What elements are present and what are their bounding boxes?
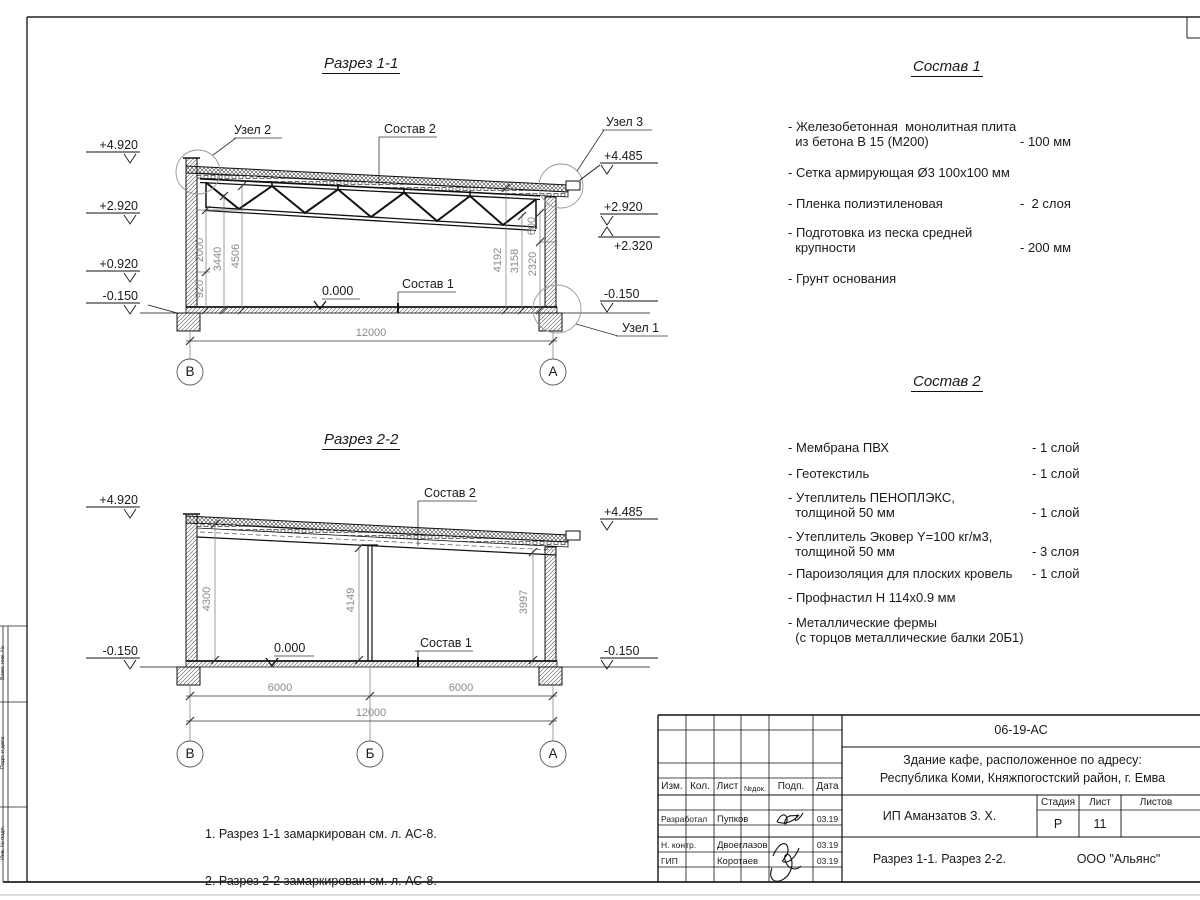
- tb-row1-date: 03.19: [813, 814, 842, 824]
- drawing-sheet: Разрез 1-1 Разрез 2-2 Состав 1 Состав 2 …: [0, 0, 1200, 900]
- section1-geometry: [86, 130, 668, 385]
- section1-title: Разрез 1-1: [322, 55, 400, 74]
- s2-elev-r1: +4.485: [604, 505, 643, 519]
- notes-block: 1. Разрез 1-1 замаркирован см. л. АС-8. …: [205, 796, 437, 900]
- tb-row2-name: Двоеглазов: [717, 840, 768, 851]
- tb-sheet-label: Лист: [1079, 797, 1121, 808]
- s2-dim-3997: 3997: [518, 582, 530, 622]
- tb-stage-value: Р: [1037, 817, 1079, 831]
- s2-span2: 6000: [431, 682, 491, 694]
- node2-label: Узел 2: [234, 123, 271, 137]
- s2-span-total: 12000: [341, 707, 401, 719]
- s1-elev-r1: +4.485: [604, 149, 643, 163]
- tb-doc-number: 06-19-АС: [842, 723, 1200, 737]
- tb-sheet-title: Разрез 1-1. Разрез 2-2.: [842, 852, 1037, 866]
- list-item: - Пароизоляция для плоских кровель - 1 с…: [788, 566, 1133, 581]
- s2-elev-r2: -0.150: [604, 644, 639, 658]
- tb-h-kol: Кол.: [686, 781, 714, 792]
- s1-dim-3440: 3440: [212, 239, 224, 279]
- s1-elev-l4: -0.150: [86, 289, 138, 303]
- note-line: 1. Разрез 1-1 замаркирован см. л. АС-8.: [205, 827, 437, 843]
- s1-elev-r3: +2.320: [614, 239, 653, 253]
- list-item: - Сетка армирующая Ø3 100x100 мм: [788, 165, 1133, 180]
- s1-elev-l2: +2.920: [86, 199, 138, 213]
- s2-sostav1-ref: Состав 1: [420, 636, 472, 650]
- s2-zero-mark: 0.000: [274, 641, 305, 655]
- tb-client: ИП Аманзатов З. Х.: [842, 809, 1037, 823]
- list-item: - Мембрана ПВХ - 1 слой: [788, 440, 1133, 455]
- s1-elev-r2: +2.920: [604, 200, 643, 214]
- s1-dim-600: 600: [526, 206, 538, 246]
- note-line: 2. Разрез 2-2 замаркирован см. л. АС-8.: [205, 874, 437, 890]
- s2-sostav2-ref: Состав 2: [424, 486, 476, 500]
- s1-dim-2000: 2000: [194, 230, 206, 270]
- s1-dim-4192: 4192: [492, 240, 504, 280]
- list-item: - Подготовка из песка средней крупности …: [788, 225, 1133, 255]
- s1-axis-left: В: [177, 364, 203, 379]
- list-item: - Профнастил Н 114x0.9 мм: [788, 590, 1133, 605]
- node3-label: Узел 3: [606, 115, 643, 129]
- s2-axis-right: А: [540, 746, 566, 761]
- s1-sostav1-ref: Состав 1: [402, 277, 454, 291]
- s1-dim-920: 920: [194, 269, 206, 309]
- tb-h-data: Дата: [813, 781, 842, 792]
- s1-dim-2320: 2320: [527, 244, 539, 284]
- tb-row3-date: 03.19: [813, 856, 842, 866]
- axis-bubbles-1: [177, 359, 566, 385]
- node1-label: Узел 1: [622, 321, 659, 335]
- frame-label-bottom: Инв. № подл.: [0, 815, 6, 871]
- section2-geometry: [86, 501, 658, 767]
- tb-row2-role: Н. контр.: [661, 840, 696, 850]
- tb-h-podp: Подп.: [769, 781, 813, 792]
- frame-label-top: Взам. инв. №: [0, 635, 6, 691]
- sostav1-title: Состав 1: [911, 58, 983, 77]
- tb-row3-role: ГИП: [661, 856, 678, 866]
- list-item: - Пленка полиэтиленовая - 2 слоя: [788, 196, 1133, 211]
- list-item: - Утеплитель ПЕНОПЛЭКС, толщиной 50 мм -…: [788, 490, 1133, 520]
- s1-dim-4506: 4506: [230, 236, 242, 276]
- s2-axis-left: В: [177, 746, 203, 761]
- section2-title: Разрез 2-2: [322, 431, 400, 450]
- s1-span-total: 12000: [341, 327, 401, 339]
- sostav2-title: Состав 2: [911, 373, 983, 392]
- tb-h-list: Лист: [714, 781, 741, 792]
- s2-axis-mid: Б: [357, 746, 383, 761]
- tb-sheets-label: Листов: [1121, 797, 1191, 808]
- tb-row1-name: Пупков: [717, 814, 748, 825]
- s1-sostav2-ref: Состав 2: [384, 122, 436, 136]
- s1-elev-l3: +0.920: [86, 257, 138, 271]
- list-item: - Грунт основания: [788, 271, 1133, 286]
- s2-elev-l1: +4.920: [86, 493, 138, 507]
- list-item: - Металлические фермы (с торцов металлич…: [788, 615, 1133, 645]
- tb-h-ndoc: №док.: [741, 784, 769, 793]
- tb-company: ООО "Альянс": [1037, 852, 1200, 866]
- s2-span1: 6000: [250, 682, 310, 694]
- frame-label-mid: Подп. и дата: [0, 725, 6, 781]
- tb-row2-date: 03.19: [813, 840, 842, 850]
- list-item: - Утеплитель Эковер Y=100 кг/м3, толщино…: [788, 529, 1133, 559]
- s2-elev-l2: -0.150: [86, 644, 138, 658]
- tb-row3-name: Коротаев: [717, 856, 758, 867]
- tb-project-line2: Республика Коми, Княжпогостский район, г…: [850, 771, 1195, 785]
- tb-stage-label: Стадия: [1037, 797, 1079, 808]
- s1-zero-mark: 0.000: [322, 284, 353, 298]
- signature-scribbles: [771, 813, 803, 881]
- s1-elev-l1: +4.920: [86, 138, 138, 152]
- tb-sheet-value: 11: [1079, 817, 1121, 831]
- tb-row1-role: Разработал: [661, 814, 707, 824]
- s1-dim-3158: 3158: [509, 241, 521, 281]
- list-item: - Геотекстиль - 1 слой: [788, 466, 1133, 481]
- list-item: - Железобетонная монолитная плита из бет…: [788, 119, 1133, 149]
- s2-dim-4300: 4300: [201, 579, 213, 619]
- tb-h-izm: Изм.: [658, 781, 686, 792]
- s2-dim-4149: 4149: [345, 580, 357, 620]
- s1-axis-right: А: [540, 364, 566, 379]
- s1-elev-r4: -0.150: [604, 287, 639, 301]
- tb-project-line1: Здание кафе, расположенное по адресу:: [850, 753, 1195, 767]
